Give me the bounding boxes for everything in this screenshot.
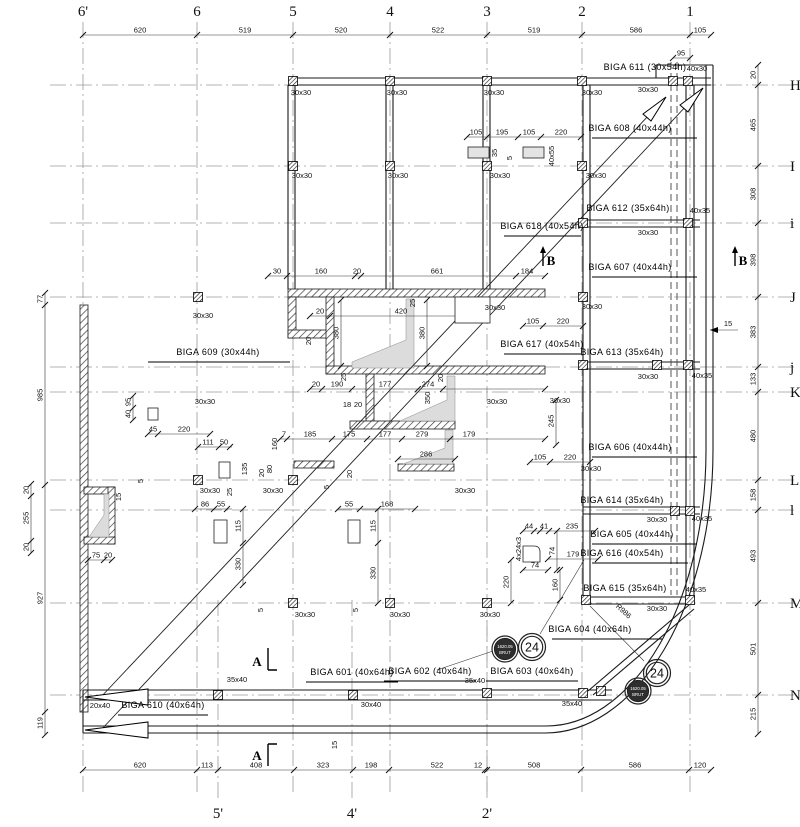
grid-axis-label-right: L xyxy=(790,473,799,489)
level-value: 1620.05 xyxy=(630,686,646,691)
core-wall-lower-horizontal xyxy=(350,421,455,429)
dimension-value: 508 xyxy=(528,761,541,770)
tendon-number: 24 xyxy=(525,641,539,655)
dimension-value: 25 xyxy=(339,373,348,381)
column-marker xyxy=(483,77,492,86)
column-marker xyxy=(653,361,662,370)
dimension-value: 120 xyxy=(694,761,707,770)
grid-axis-label-top: 5 xyxy=(289,4,297,20)
grid-axis-label-right: K xyxy=(790,385,800,401)
dimension-value: 185 xyxy=(304,430,317,439)
dimension-value: 105 xyxy=(694,26,707,35)
dimension-value: 586 xyxy=(630,26,643,35)
dimension-value: 5 xyxy=(351,608,360,612)
grid-axis-label-right: N xyxy=(790,688,800,704)
dimension-value: 195 xyxy=(496,128,509,137)
column-marker xyxy=(386,162,395,171)
level-unit: BRUT xyxy=(632,692,644,697)
column-marker xyxy=(671,507,680,516)
member-size-label: 30x30 xyxy=(487,397,507,406)
beam-label: BIGA 601 (40x64h) xyxy=(310,667,393,677)
column-marker xyxy=(684,219,693,228)
dimension-value: 522 xyxy=(432,26,445,35)
column-marker xyxy=(582,596,591,605)
member-size-label: 30x30 xyxy=(291,88,311,97)
dimension-value: 55 xyxy=(217,500,225,509)
dimension-value: 220 xyxy=(564,453,577,462)
dimension-value: 45 xyxy=(149,425,157,434)
beam-label: BIGA 607 (40x44h) xyxy=(588,262,671,272)
grid-axis-label-right: j xyxy=(789,360,794,376)
grid-axis-label-top: 4 xyxy=(386,4,394,20)
dimension-value: 330 xyxy=(234,558,243,571)
dimension-value: 245 xyxy=(547,415,556,428)
member-size-label: 40x30 xyxy=(687,64,707,73)
dimension-value: 20 xyxy=(316,307,324,316)
member-size-label: 35x40 xyxy=(465,676,485,685)
dimension-value: 279 xyxy=(416,430,429,439)
dimension-value: 41 xyxy=(540,522,548,531)
dimension-value: 465 xyxy=(749,119,758,132)
dimension-value: 20 xyxy=(312,380,320,389)
dimension-value: 620 xyxy=(134,761,147,770)
dimension-value: 235 xyxy=(566,522,579,531)
dimension-value: 105 xyxy=(523,128,536,137)
member-size-label: 30x30 xyxy=(388,171,408,180)
dimension-value: 20 xyxy=(749,71,758,79)
member-size-label: 40x35 xyxy=(690,206,710,215)
dimension-value: 30 xyxy=(273,267,281,276)
member-size-label: 30x30 xyxy=(550,396,570,405)
rounded-column-detail xyxy=(523,546,540,562)
column-marker xyxy=(194,476,203,485)
member-size-label: 30x30 xyxy=(490,171,510,180)
column-marker xyxy=(194,293,203,302)
member-size-label: 20x40 xyxy=(90,701,110,710)
beam-label: BIGA 613 (35x64h) xyxy=(580,347,663,357)
dimension-value: 519 xyxy=(528,26,541,35)
member-size-label: 30x30 xyxy=(295,610,315,619)
section-letter: B xyxy=(739,253,748,268)
structural-beam-plan-drawing: 6205195205225195861056201134083231985221… xyxy=(0,0,800,827)
dimension-value: 520 xyxy=(335,26,348,35)
dimension-value: 40 xyxy=(124,410,133,418)
grid-axis-label-bottom: 4' xyxy=(347,806,358,822)
member-size-label: 30x30 xyxy=(484,88,504,97)
dimension-value: 80 xyxy=(265,465,274,473)
beam-label: BIGA 606 (40x44h) xyxy=(588,442,671,452)
dimension-value: 15 xyxy=(114,493,123,501)
paper-background xyxy=(0,0,800,827)
dimension-value: 25 xyxy=(408,299,417,307)
member-size-label: 30x30 xyxy=(638,228,658,237)
member-size-label: 30x30 xyxy=(390,610,410,619)
structural-plan-page: 6205195205225195861056201134083231985221… xyxy=(0,0,800,827)
column-marker xyxy=(579,293,588,302)
member-size-label: 30x30 xyxy=(263,486,283,495)
dimension-value: 133 xyxy=(749,373,758,386)
beam-label: BIGA 617 (40x54h) xyxy=(500,339,583,349)
member-size-label: 30x30 xyxy=(455,486,475,495)
member-size-label: 30x30 xyxy=(647,515,667,524)
member-size-label: 30x30 xyxy=(195,397,215,406)
beam-label: BIGA 614 (35x64h) xyxy=(580,495,663,505)
dimension-value: 18 xyxy=(343,400,351,409)
dimension-value: 50 xyxy=(220,438,228,447)
beam-label: BIGA 616 (40x54h) xyxy=(580,548,663,558)
member-size-label: 30x40 xyxy=(361,700,381,709)
column-marker xyxy=(578,77,587,86)
dimension-value: 75 xyxy=(92,551,100,560)
column-detail-rect xyxy=(348,520,360,543)
dimension-value: 380 xyxy=(418,327,427,340)
core-wall-top xyxy=(288,289,545,297)
member-size-label: 30x30 xyxy=(647,604,667,613)
dimension-value: 20 xyxy=(436,374,445,382)
tendon-number: 24 xyxy=(650,667,664,681)
column-marker xyxy=(684,77,693,86)
dimension-value: 330 xyxy=(369,567,378,580)
dimension-value: 20 xyxy=(104,551,112,560)
dimension-value: 220 xyxy=(502,576,511,589)
dimension-value: 175 xyxy=(343,430,356,439)
dimension-value: 35 xyxy=(490,149,499,157)
member-size-label: 35x40 xyxy=(562,699,582,708)
beam-label: BIGA 609 (30x44h) xyxy=(176,347,259,357)
column-marker xyxy=(597,687,606,696)
column-marker xyxy=(669,77,678,86)
dimension-value: 493 xyxy=(749,550,758,563)
member-size-label: 30x30 xyxy=(586,171,606,180)
column-marker xyxy=(349,691,358,700)
grid-axis-label-top: 1 xyxy=(686,4,694,20)
member-size-label: 30x30 xyxy=(485,303,505,312)
dimension-value: 115 xyxy=(369,520,378,532)
dimension-value: 20 xyxy=(22,486,31,494)
column-detail-rect xyxy=(214,520,227,543)
dimension-value: 74 xyxy=(548,547,557,555)
beam-label: BIGA 603 (40x64h) xyxy=(490,666,573,676)
dimension-value: 274 xyxy=(422,380,435,389)
dimension-value: 215 xyxy=(749,708,758,721)
dimension-value: 119 xyxy=(36,717,45,729)
member-size-label: 40x35 xyxy=(692,514,712,523)
dimension-value: 5 xyxy=(322,485,331,489)
dimension-value: 5 xyxy=(136,479,145,483)
grid-axis-label-right: J xyxy=(790,290,796,306)
dimension-value: 25 xyxy=(225,488,234,496)
core-wall-left-stub xyxy=(288,330,332,338)
dimension-value: 286 xyxy=(420,450,433,459)
section-letter: A xyxy=(252,654,262,669)
dimension-value: 105 xyxy=(470,128,483,137)
dimension-value: 620 xyxy=(134,26,147,35)
dimension-value: 113 xyxy=(201,761,213,770)
member-size-label: 30x30 xyxy=(638,372,658,381)
dimension-value: 255 xyxy=(22,512,31,525)
member-size-label: 30x30 xyxy=(292,171,312,180)
section-letter: B xyxy=(547,253,556,268)
dimension-value: 5 xyxy=(505,156,514,160)
beam-label: BIGA 608 (40x44h) xyxy=(588,123,671,133)
dimension-value: 111 xyxy=(202,438,213,447)
dimension-value: 20 xyxy=(353,267,361,276)
dimension-value: 20 xyxy=(345,470,354,478)
dimension-value: 168 xyxy=(381,500,394,509)
column-marker xyxy=(483,689,492,698)
dimension-value: 55 xyxy=(345,500,353,509)
section-letter: A xyxy=(252,748,262,763)
grid-axis-label-right: H xyxy=(790,78,800,94)
dimension-value: 383 xyxy=(749,326,758,339)
dimension-value: 7 xyxy=(282,430,286,439)
dimension-value: 20 xyxy=(354,400,362,409)
left-wall xyxy=(80,305,88,712)
grid-axis-label-right: M xyxy=(790,596,800,612)
level-unit: BRUT xyxy=(499,650,511,655)
column-marker xyxy=(578,162,587,171)
member-size-label: 40x35 xyxy=(686,585,706,594)
column-detail-rect xyxy=(219,462,230,478)
dimension-value: 95 xyxy=(677,49,685,58)
column-marker xyxy=(386,77,395,86)
dimension-value: 20 xyxy=(304,337,313,345)
member-size-label: 30x30 xyxy=(193,311,213,320)
dimension-value: 95 xyxy=(124,398,133,406)
member-size-label: 30x30 xyxy=(480,610,500,619)
column-marker xyxy=(289,162,298,171)
wall-pocket-bottom xyxy=(84,537,115,544)
column-marker xyxy=(483,162,492,171)
level-value: 1620.05 xyxy=(497,644,513,649)
dimension-value: 160 xyxy=(551,579,560,592)
core-wall-stub-left xyxy=(294,461,334,468)
dimension-value: 985 xyxy=(36,389,45,402)
dimension-value: 184 xyxy=(521,267,534,276)
member-size-label: 30x30 xyxy=(582,88,602,97)
dimension-value: 501 xyxy=(749,643,758,656)
dimension-value: 398 xyxy=(749,254,758,267)
column-marker xyxy=(483,599,492,608)
dimension-value: 5 xyxy=(256,608,265,612)
dimension-value: 220 xyxy=(178,425,191,434)
dimension-value: 519 xyxy=(239,26,252,35)
grid-axis-label-top: 2 xyxy=(578,4,586,20)
dimension-value: 420 xyxy=(395,307,408,316)
column-marker xyxy=(289,476,298,485)
grid-axis-label-bottom: 5' xyxy=(213,806,224,822)
beam-label: BIGA 604 (40x64h) xyxy=(548,624,631,634)
dimension-value: 308 xyxy=(749,188,758,201)
column-marker xyxy=(686,596,695,605)
dimension-value: 115 xyxy=(234,520,243,532)
column-marker xyxy=(579,689,588,698)
dimension-value: 586 xyxy=(629,761,642,770)
beam-label: BIGA 610 (40x64h) xyxy=(121,700,204,710)
beam-section-rect xyxy=(468,147,489,158)
dimension-value: 15 xyxy=(724,319,732,328)
dimension-value: 4x24x3 xyxy=(514,537,523,561)
dimension-value: 86 xyxy=(201,500,209,509)
core-wall-lower-vertical xyxy=(366,374,374,425)
dimension-value: 20 xyxy=(22,543,31,551)
column-marker xyxy=(386,599,395,608)
dimension-value: 350 xyxy=(423,392,432,405)
dimension-value: 179 xyxy=(567,550,580,559)
dimension-value: 12 xyxy=(474,761,482,770)
beam-section-rect xyxy=(523,147,544,158)
column-marker xyxy=(289,599,298,608)
beam-label: BIGA 602 (40x64h) xyxy=(388,666,471,676)
dimension-value: 158 xyxy=(749,489,758,502)
dimension-value: 160 xyxy=(270,438,279,451)
column-detail-rect xyxy=(148,408,158,420)
dimension-value: 480 xyxy=(749,430,758,443)
dimension-value: 522 xyxy=(431,761,444,770)
member-size-label: 30x30 xyxy=(581,464,601,473)
dimension-value: 380 xyxy=(332,327,341,340)
dimension-value: 105 xyxy=(534,453,547,462)
grid-axis-label-top: 6' xyxy=(78,4,89,20)
grid-axis-label-right: l xyxy=(790,503,794,519)
member-size-label: 30x30 xyxy=(582,302,602,311)
column-marker xyxy=(214,691,223,700)
member-size-label: 40x35 xyxy=(692,371,712,380)
dimension-value: 927 xyxy=(36,592,45,605)
beam-label: BIGA 605 (40x44h) xyxy=(590,529,673,539)
core-wall-stub-right xyxy=(398,464,454,471)
dimension-value: 77 xyxy=(36,295,45,303)
beam-label: BIGA 615 (35x64h) xyxy=(583,583,666,593)
grid-axis-label-bottom: 2' xyxy=(482,806,493,822)
grid-axis-label-top: 3 xyxy=(483,4,491,20)
member-size-label: 30x30 xyxy=(638,85,658,94)
grid-axis-label-right: I xyxy=(790,159,795,175)
member-size-label: 30x30 xyxy=(387,88,407,97)
dimension-value: 179 xyxy=(463,430,476,439)
dimension-value: 44 xyxy=(525,522,533,531)
member-size-label: 35x40 xyxy=(227,675,247,684)
dimension-value: 198 xyxy=(365,761,378,770)
dimension-value: 40x55 xyxy=(547,146,556,166)
beam-label: BIGA 611 (30x54h) xyxy=(604,62,687,72)
member-size-label: 30x30 xyxy=(200,486,220,495)
dimension-value: 105 xyxy=(527,317,540,326)
dimension-value: 177 xyxy=(379,380,392,389)
beam-label: BIGA 612 (35x64h) xyxy=(586,203,669,213)
dimension-value: 220 xyxy=(555,128,568,137)
grid-axis-label-top: 6 xyxy=(193,4,201,20)
column-marker xyxy=(579,361,588,370)
column-marker xyxy=(289,77,298,86)
dimension-value: 135 xyxy=(240,463,249,476)
dimension-value: 160 xyxy=(315,267,328,276)
dimension-value: 323 xyxy=(317,761,330,770)
beam-label: BIGA 618 (40x54h) xyxy=(500,221,583,231)
dimension-value: 177 xyxy=(379,430,392,439)
grid-axis-label-right: i xyxy=(790,216,794,232)
dimension-value: 15 xyxy=(330,741,339,749)
dimension-value: 661 xyxy=(431,267,444,276)
column-marker xyxy=(684,361,693,370)
dimension-value: 220 xyxy=(557,317,570,326)
